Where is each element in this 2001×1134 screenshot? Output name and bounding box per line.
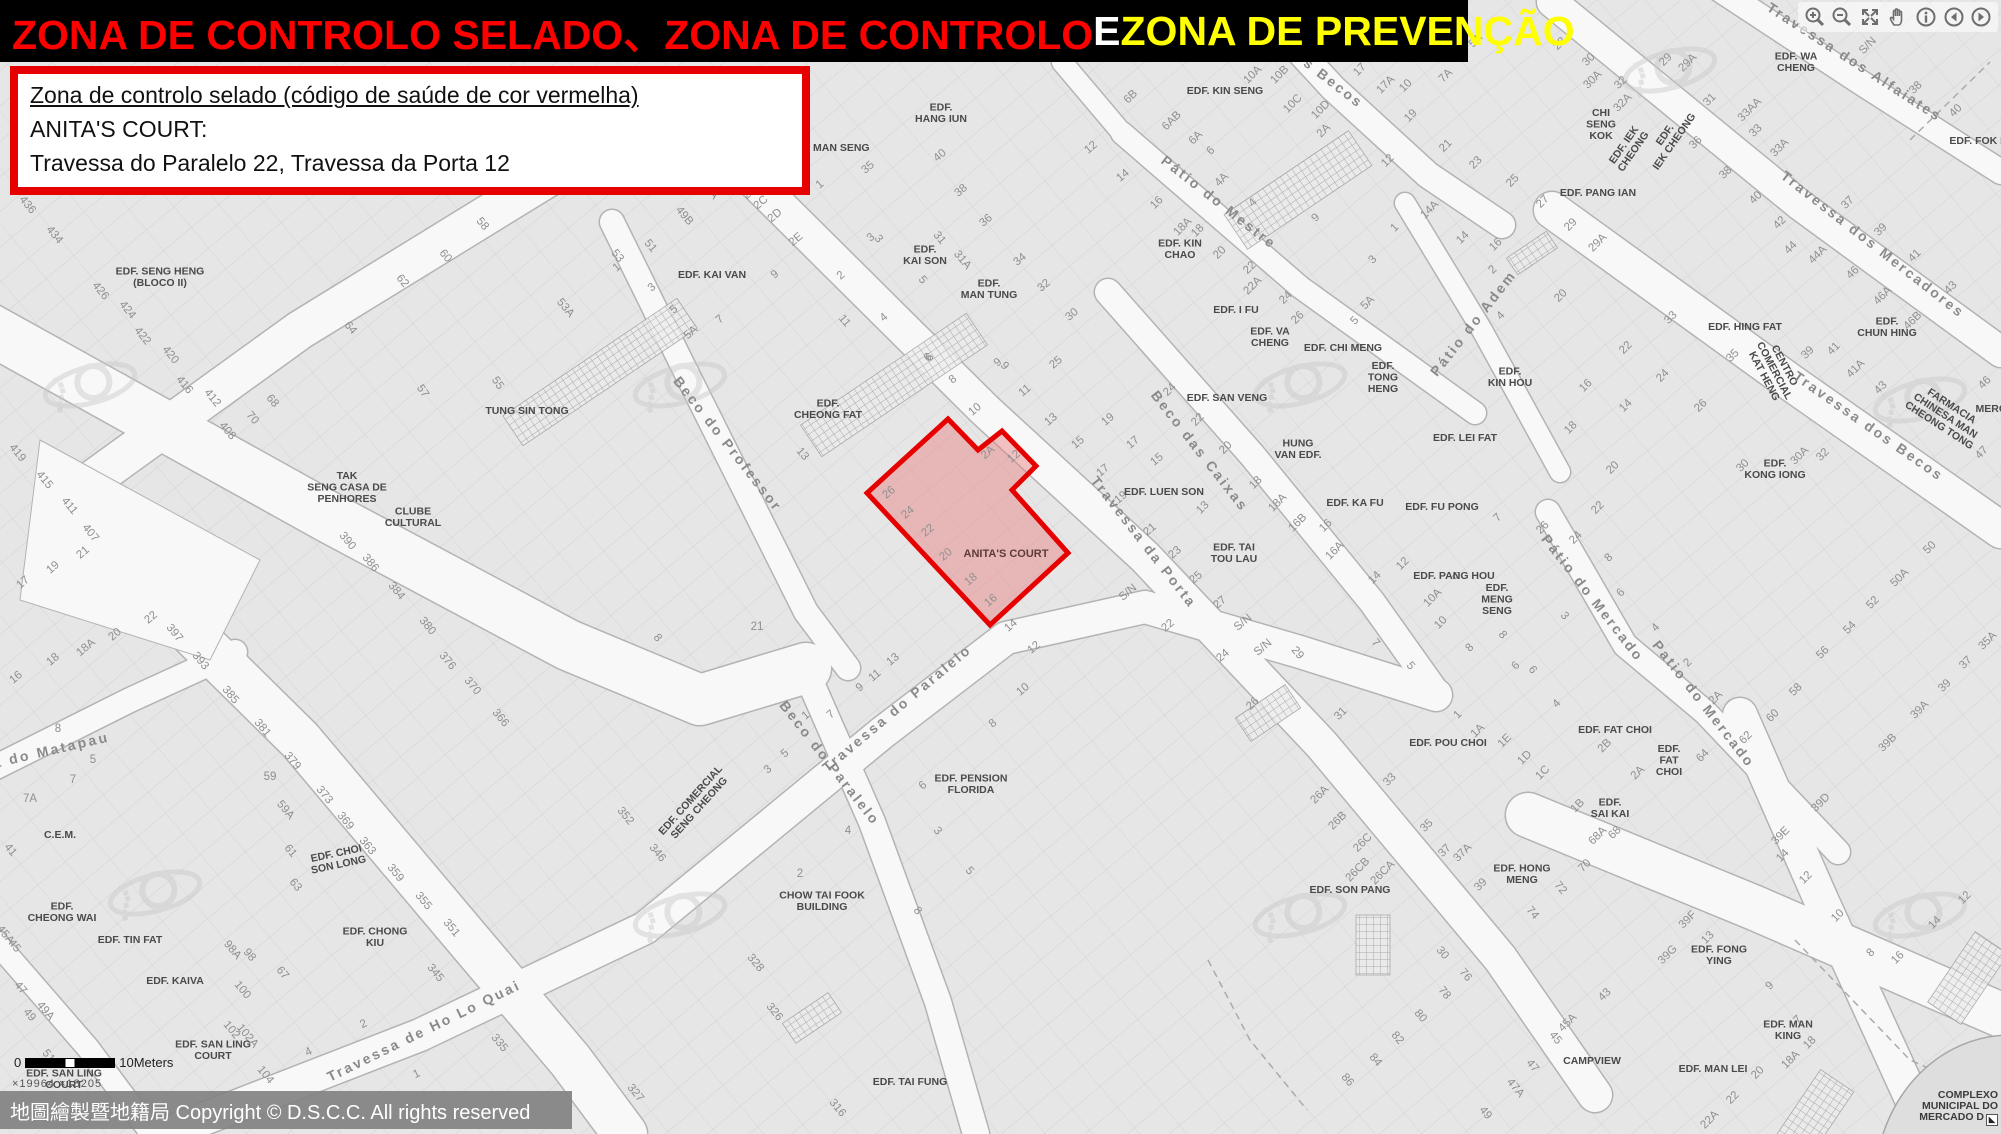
parcel-number: 4 xyxy=(845,825,852,837)
map-coordinates: ×19964 ×18205 xyxy=(12,1078,102,1090)
note-line: MERCADO D xyxy=(1919,1111,1984,1123)
building-label: EDF.TONGHENG xyxy=(1368,360,1398,395)
building-label: EDF. PANG IAN xyxy=(1560,187,1636,199)
building-label: EDF. TAI FUNG xyxy=(873,1076,947,1088)
parcel-number: 8 xyxy=(55,723,61,735)
pan-hand-icon[interactable] xyxy=(1885,5,1910,30)
building-label: C.E.M. xyxy=(44,829,76,841)
crosshatch-area xyxy=(1356,915,1390,975)
parcel-number: 2 xyxy=(797,868,803,880)
parcel-number: 7 xyxy=(70,774,76,786)
building-label: EDF. SAN VENG xyxy=(1187,392,1268,404)
scale-zero: 0 xyxy=(14,1055,21,1070)
scale-bar-graphic xyxy=(25,1058,115,1068)
building-label: EDF.FATCHOI xyxy=(1656,743,1682,778)
scale-label: 10Meters xyxy=(119,1055,173,1070)
building-label: EDF. PANG HOU xyxy=(1413,570,1494,582)
full-extent-icon[interactable] xyxy=(1858,5,1883,30)
building-label: EDF. KIN SENG xyxy=(1187,85,1263,97)
building-label: EDF. CHI MENG xyxy=(1304,342,1382,354)
banner-text: E xyxy=(1093,8,1120,55)
building-label: EDF. MAN LEI xyxy=(1679,1063,1748,1075)
building-label: EDF. KA FU xyxy=(1326,497,1383,509)
building-label: EDF. FOK L xyxy=(1949,135,2001,147)
map-toolbar xyxy=(1798,2,1998,32)
building-label: EDF. KAIVA xyxy=(146,975,204,987)
title-banner: ZONA DE CONTROLO SELADO、ZONA DE CONTROLO… xyxy=(0,0,1468,62)
parcel-number: 59 xyxy=(264,771,277,783)
banner-text: ZONA DE PREVENÇÃO xyxy=(1121,8,1575,55)
sealed-zone-label: ANITA'S COURT xyxy=(964,548,1049,560)
info-icon[interactable] xyxy=(1913,5,1938,30)
forward-icon[interactable] xyxy=(1969,5,1994,30)
zone-info-box: Zona de controlo selado (código de saúde… xyxy=(10,66,810,195)
building-label: EDF. TIN FAT xyxy=(98,934,163,946)
parcel-number: 7A xyxy=(23,793,37,805)
zoom-out-icon[interactable] xyxy=(1830,5,1855,30)
zone-info-title: Zona de controlo selado (código de saúde… xyxy=(30,82,790,109)
building-label: EDF. VACHENG xyxy=(1250,326,1290,350)
building-label: EDF. HING FAT xyxy=(1708,321,1782,333)
market-complex-note: COMPLEXO MUNICIPAL DO MERCADO D◣ xyxy=(1919,1090,1998,1126)
map-viewer: 4364344264244224204164124087068646260585… xyxy=(0,0,2001,1134)
zoom-in-icon[interactable] xyxy=(1802,5,1827,30)
copyright-bar: 地圖繪製暨地籍局 Copyright © D.S.C.C. All rights… xyxy=(0,1091,572,1129)
building-label: TUNG SIN TONG xyxy=(485,405,568,417)
note-line-wrap: MERCADO D◣ xyxy=(1919,1112,1998,1126)
building-label: EDF. FAT CHOI xyxy=(1578,724,1652,736)
building-label: EDF. KAI VAN xyxy=(678,269,746,281)
building-label: MERC xyxy=(1976,403,2001,415)
building-label: EDF. POU CHOI xyxy=(1409,737,1487,749)
scale-bar: 0 10Meters xyxy=(14,1055,173,1070)
banner-text: ZONA DE CONTROLO SELADO、ZONA DE CONTROLO xyxy=(12,1,1093,61)
building-label: EDF. WACHENG xyxy=(1775,51,1818,75)
building-label: EDF. LUEN SON xyxy=(1124,486,1204,498)
building-label: EDF. FU PONG xyxy=(1405,501,1479,513)
layer-checkbox-icon[interactable]: ◣ xyxy=(1986,1114,1998,1126)
building-label: EDF.MENGSENG xyxy=(1481,582,1513,617)
building-label: EDF. LEI FAT xyxy=(1433,432,1498,444)
building-label: CAMPVIEW xyxy=(1563,1055,1621,1067)
building-label: EDF. TAITOU LAU xyxy=(1211,542,1257,566)
back-icon[interactable] xyxy=(1941,5,1966,30)
building-label: EDF. SON PANG xyxy=(1310,884,1391,896)
building-label: EDF. I FU xyxy=(1213,304,1259,316)
zone-info-building: ANITA'S COURT: xyxy=(30,116,790,143)
building-label: EDF. KINCHAO xyxy=(1158,238,1202,262)
zone-info-addresses: Travessa do Paralelo 22, Travessa da Por… xyxy=(30,150,790,177)
parcel-number: 21 xyxy=(751,621,764,633)
parcel-number: 5 xyxy=(90,754,96,766)
